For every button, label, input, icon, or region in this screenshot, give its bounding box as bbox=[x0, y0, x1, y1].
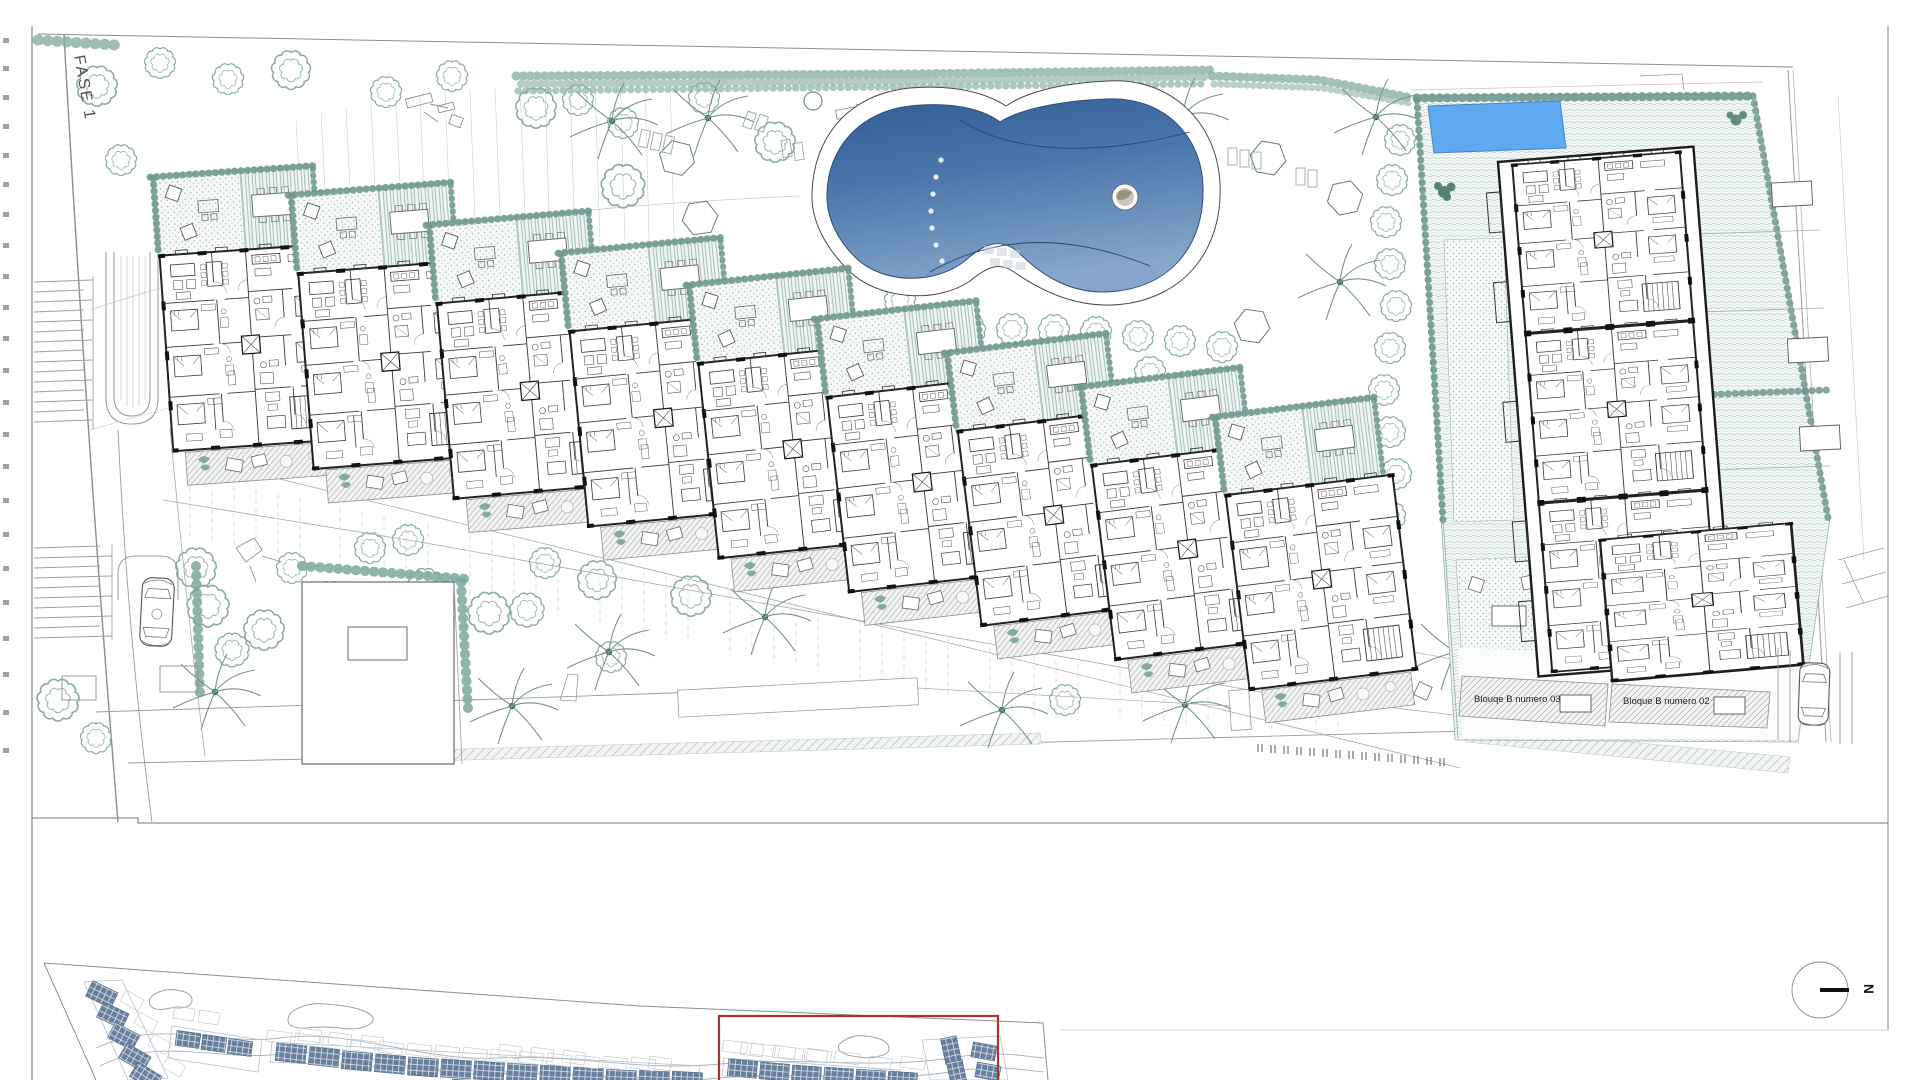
svg-text:Bloque B numero 02: Bloque B numero 02 bbox=[1623, 696, 1710, 707]
svg-text:N: N bbox=[1861, 984, 1876, 994]
svg-text:Blouqe B numero 03: Blouqe B numero 03 bbox=[1474, 694, 1561, 705]
